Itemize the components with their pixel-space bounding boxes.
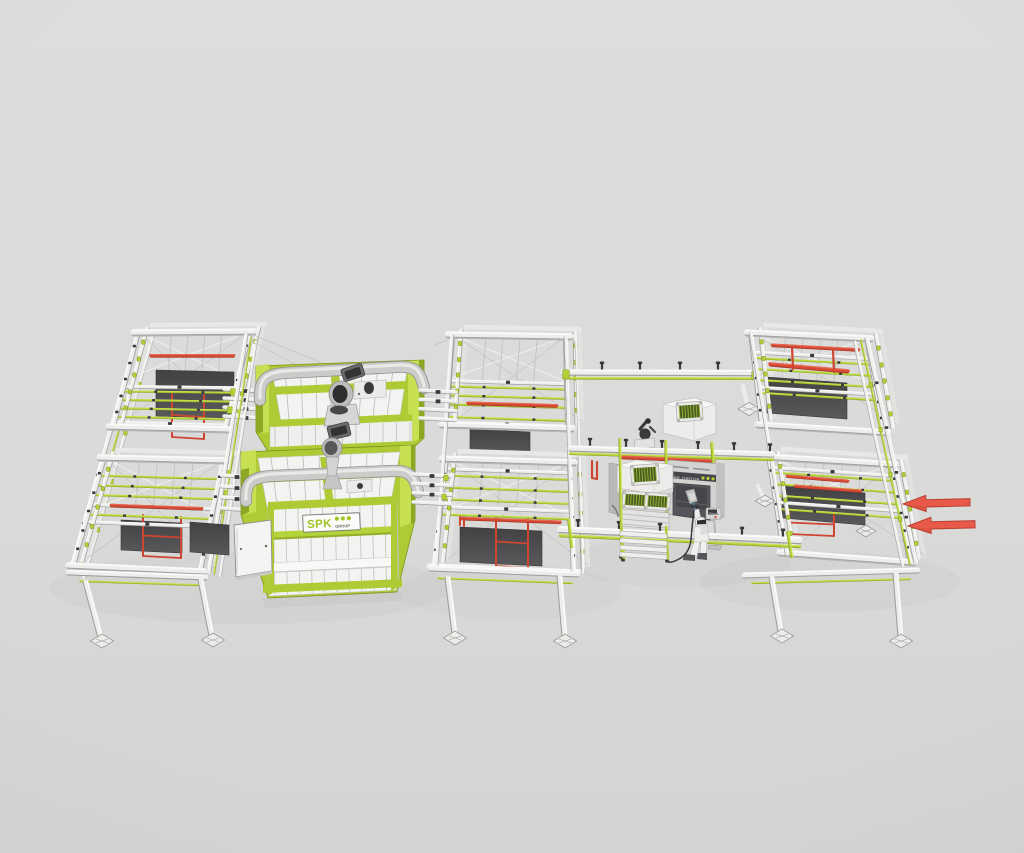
svg-text:SPK: SPK bbox=[307, 518, 333, 531]
svg-text:GROUP: GROUP bbox=[335, 523, 350, 529]
